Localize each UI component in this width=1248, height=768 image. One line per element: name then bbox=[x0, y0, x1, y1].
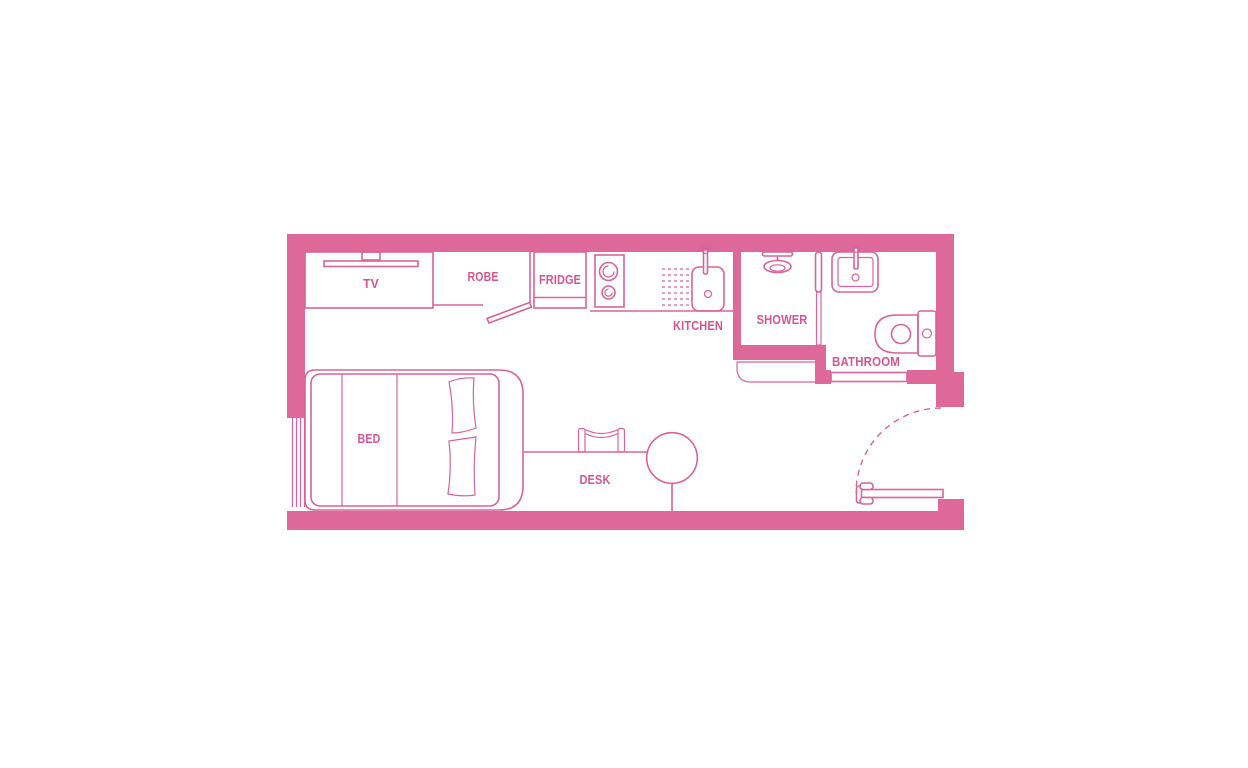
bathroom-label: BATHROOM bbox=[832, 354, 900, 369]
shower-hob-curve bbox=[737, 362, 818, 382]
side-table bbox=[647, 433, 698, 484]
bathroom-sliding-door bbox=[831, 373, 907, 382]
cooktop-burner-large bbox=[600, 263, 618, 281]
bathroom-wall-right bbox=[907, 370, 954, 384]
shower-rail bbox=[763, 252, 793, 256]
tv-mount-bracket bbox=[362, 252, 380, 260]
tv-cabinet: TV bbox=[305, 252, 433, 308]
robe-label: ROBE bbox=[468, 269, 499, 284]
toilet-bowl bbox=[875, 315, 918, 353]
basin-tap-spout bbox=[854, 248, 858, 269]
shower-screen bbox=[816, 252, 822, 292]
shower-room: SHOWER bbox=[737, 252, 822, 382]
floor-plan-canvas: TV ROBE FRIDGE KITC bbox=[0, 0, 1248, 768]
tv-screen bbox=[324, 261, 418, 267]
basin-drain bbox=[852, 274, 859, 281]
robe: ROBE bbox=[433, 252, 532, 323]
bed-mattress bbox=[311, 374, 499, 506]
bed: BED bbox=[305, 370, 523, 510]
desk-label: DESK bbox=[580, 472, 611, 487]
tv-label: TV bbox=[363, 276, 379, 291]
shower-label: SHOWER bbox=[757, 312, 808, 327]
right-wall bbox=[936, 234, 954, 372]
fridge-label: FRIDGE bbox=[539, 272, 581, 287]
kitchen-sink-drain bbox=[705, 291, 712, 298]
toilet-seat bbox=[892, 325, 911, 344]
studio-floor-plan: TV ROBE FRIDGE KITC bbox=[0, 0, 1248, 768]
toilet-button bbox=[923, 329, 932, 338]
left-wall bbox=[287, 234, 305, 418]
cooktop-burner-small bbox=[602, 286, 615, 299]
bed-pillow-top bbox=[449, 378, 476, 433]
door-swing-arc bbox=[856, 408, 941, 493]
kitchen-shower-wall bbox=[733, 252, 741, 360]
window bbox=[293, 418, 305, 507]
shower-bottom-wall bbox=[733, 345, 820, 360]
robe-open-door bbox=[487, 303, 532, 324]
cooktop-burner-large-coil bbox=[603, 266, 614, 277]
door-leaf bbox=[859, 490, 943, 498]
kitchen: KITCHEN bbox=[590, 246, 733, 333]
entry-door bbox=[856, 408, 943, 504]
bed-pillow-bottom bbox=[448, 437, 476, 496]
cooktop-burner-small-coil bbox=[605, 289, 612, 296]
door-handle-bottom bbox=[860, 498, 873, 505]
chair-post-right bbox=[618, 429, 625, 453]
fridge: FRIDGE bbox=[534, 252, 586, 308]
kitchen-label: KITCHEN bbox=[673, 318, 723, 333]
bed-label: BED bbox=[358, 431, 381, 446]
door-hinge-jamb bbox=[938, 499, 964, 512]
bottom-wall bbox=[287, 511, 964, 530]
toilet-cistern bbox=[918, 311, 936, 356]
bathroom: BATHROOM bbox=[831, 247, 936, 382]
bed-frame bbox=[305, 370, 523, 510]
shower-bathroom-partition bbox=[817, 292, 822, 345]
drainboard bbox=[662, 269, 691, 305]
desk-chair bbox=[579, 429, 625, 453]
chair-back-outer bbox=[585, 430, 618, 434]
desk: DESK bbox=[524, 429, 697, 512]
door-handle-top bbox=[860, 483, 873, 490]
shower-head-inner bbox=[770, 265, 785, 271]
chair-post-left bbox=[579, 429, 586, 453]
